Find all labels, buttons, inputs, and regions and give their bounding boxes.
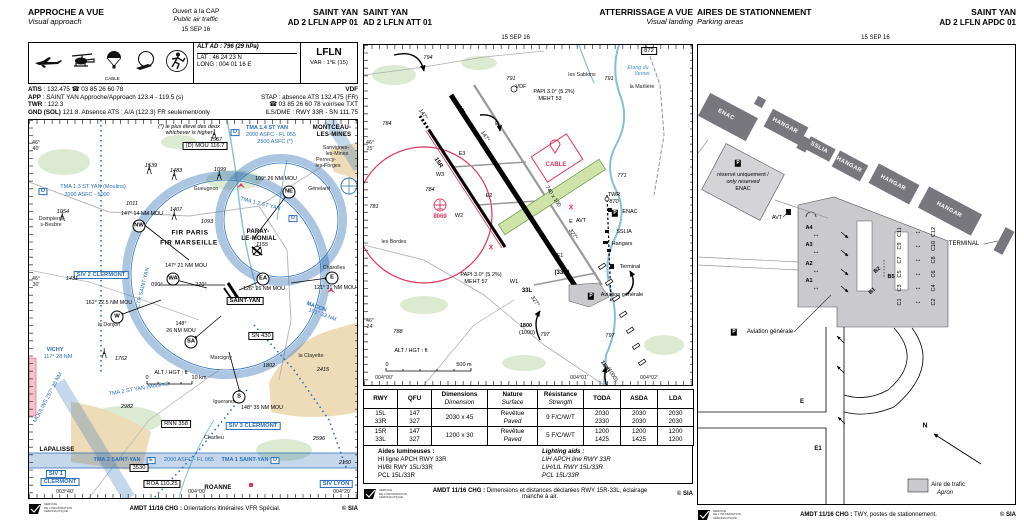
map-label: C12 <box>932 227 938 237</box>
approach-infobox: CABLE ALT AD : 796 (29 hPa) LAT : 46 24 … <box>28 42 358 84</box>
map-label: 797 <box>540 333 549 339</box>
chart-date: 15 SEP 16 <box>501 32 530 42</box>
map-label: Marcigny <box>210 356 232 362</box>
map-label: 25' <box>367 147 374 153</box>
parking-title-en: Parking areas <box>697 18 811 27</box>
map-label: Hangars <box>612 242 633 248</box>
approach-header: APPROCHE A VUE Visual approach Ouvert à … <box>28 8 358 42</box>
map-label: ↔ <box>915 270 922 277</box>
map-label: 797 <box>605 334 614 340</box>
landing-ident: SAINT YAN AD 2 LFLN ATT 01 <box>363 8 432 27</box>
map-label: 004°01' <box>570 376 588 382</box>
map-label: 1800 <box>520 324 532 330</box>
map-label: 004°00' <box>188 490 206 496</box>
map-label: A3 <box>805 243 812 249</box>
map-label: ↔ <box>813 231 820 238</box>
map-label: 0 <box>145 376 148 382</box>
map-label: 1093 <box>201 220 213 226</box>
map-label: ENAC <box>622 210 637 216</box>
frequencies: ATIS : 132.475 ☎ 03 85 26 60 78VDF APP :… <box>28 86 358 117</box>
map-label: D <box>231 129 240 137</box>
map-label: 1762 <box>115 357 127 363</box>
map-label: 2982 <box>121 405 133 411</box>
map-label: 2596 <box>313 437 325 443</box>
table-row: 15L33R 147327 2030 x 45 RevêtuePaved 9 F… <box>364 408 694 427</box>
map-label: 126° 26 NM MOU <box>243 287 285 293</box>
map-label: C9 <box>898 242 904 249</box>
map-label: SAINT-YAN <box>227 297 264 305</box>
landing-panel: SAINT YAN AD 2 LFLN ATT 01 15 SEP 16 ATT… <box>363 0 693 526</box>
map-label: la Marlière <box>630 85 655 91</box>
map-label: SIV 2 CLERMONT <box>74 271 129 279</box>
map-label: 109° 26 NM MOU <box>255 177 297 183</box>
map-label: ROA 110.25 <box>143 480 180 488</box>
map-label: C10 <box>932 241 938 251</box>
map-label: ↔ <box>813 248 820 255</box>
map-label: PAPI 3.0° (5.2%) <box>533 90 574 96</box>
map-label: E1 <box>557 254 564 260</box>
map-label: Terminal <box>620 265 641 271</box>
map-label: 147° 14 NM MOU <box>121 212 163 218</box>
parking-map: ENACHANGARSSLIAHANGARHANGARHANGARTERMINA… <box>697 44 1016 505</box>
map-label: C2 <box>932 298 938 305</box>
map-label: 270° <box>195 283 206 289</box>
vac-chart-page: APPROCHE A VUE Visual approach Ouvert à … <box>0 0 1024 526</box>
lighting-fr: Aides lumineuses : HI ligne APCH RWY 33R… <box>364 448 528 480</box>
map-label: VICHY <box>47 348 64 354</box>
lat: LAT : 46 24 23 N <box>197 55 297 63</box>
map-label: 1407 <box>170 208 182 214</box>
chart-ref: AD 2 LFLN ATT 01 <box>363 18 432 27</box>
cap-en: Public air traffic <box>172 16 219 24</box>
copyright: © SIA <box>976 512 1016 518</box>
map-label: TERMINAL <box>949 241 979 247</box>
approach-title-en: Visual approach <box>28 18 104 27</box>
sia-logo: SERVICEDE L'INFORMATIONAÉRONAUTIQUE <box>363 488 427 500</box>
map-label: Charlieu <box>204 436 224 442</box>
map-label: (1000) <box>519 331 535 337</box>
map-label: MEHT 57 <box>464 280 487 286</box>
map-label: 33L <box>522 288 532 294</box>
landing-map: 872Etang duVernetla Marlièreles Sablons7… <box>363 44 693 386</box>
map-label: 788 <box>393 330 402 336</box>
map-label: 121° 31 NM MOU <box>314 286 356 292</box>
map-label: SIV LYON <box>320 480 353 488</box>
map-label: whichever is higher <box>165 131 212 137</box>
map-label: AVT <box>772 216 782 222</box>
map-label: MONTCEAU- <box>313 125 351 131</box>
map-label: 24' <box>367 325 374 331</box>
map-label: 148° <box>176 322 187 328</box>
map-label: D <box>289 215 298 223</box>
map-label: NW <box>133 219 146 232</box>
map-label: 870 <box>609 200 618 206</box>
map-label: (33R) <box>554 270 569 276</box>
map-label: ↔ <box>915 298 922 305</box>
airport-name: SAINT YAN <box>363 8 432 18</box>
map-label: TMA 1.4 ST YAN <box>246 126 288 132</box>
aerobatics-icon <box>132 50 158 77</box>
map-label: A4 <box>805 226 812 232</box>
copyright: © SIA <box>318 506 358 512</box>
activity-icons: CABLE <box>29 43 193 83</box>
map-label: ↔ <box>813 267 820 274</box>
map-label: TMA 1.3 ST YAN (Moulins) <box>60 185 125 191</box>
map-label: E <box>569 220 573 226</box>
map-label: E <box>800 399 804 405</box>
copyright: © SIA <box>653 491 693 497</box>
cable-label: CABLE <box>105 76 120 81</box>
aerobatic-symbol <box>434 199 446 211</box>
map-label: SSLIA <box>616 230 632 236</box>
map-label: LES-MINES <box>317 132 351 138</box>
runway-table: RWY QFU DimensionsDimension NatureSurfac… <box>363 389 694 446</box>
lighting-aids: Aides lumineuses : HI ligne APCH RWY 33R… <box>363 446 693 484</box>
long: LONG : 004 01 16 E <box>197 62 297 70</box>
map-label: E2 <box>486 194 493 200</box>
map-label: A1 <box>805 279 812 285</box>
map-label: NE <box>283 185 296 198</box>
map-label: E <box>326 271 339 284</box>
map-label: P <box>588 293 594 300</box>
airplane-icon <box>33 52 63 75</box>
apron-island <box>857 221 872 291</box>
chart-date: 15 SEP 16 <box>861 32 890 42</box>
lighting-en: Lighting aids : LIH APCH line RWY 33R LI… <box>528 448 692 480</box>
map-label: 1099 <box>214 168 226 174</box>
altitude-cell: ALT AD : 796 (29 hPa) LAT : 46 24 23 N L… <box>193 43 300 83</box>
map-label: ↔ <box>813 284 820 291</box>
map-label: D <box>271 457 280 465</box>
map-label: 10 km <box>192 376 207 382</box>
map-label: PAPI 3.0° (5.2%) <box>460 273 501 279</box>
map-label: Aviation générale <box>601 293 643 299</box>
map-label: 8069 <box>433 214 446 220</box>
map-label: les-Forges <box>315 164 340 170</box>
map-label: 26 NM MOU <box>166 329 195 335</box>
map-label: ↔ <box>915 228 922 235</box>
chart-ref: AD 2 LFLN APDC 01 <box>939 18 1016 27</box>
map-label: 117° 28 NM <box>44 355 73 361</box>
map-label: C4 <box>932 284 938 291</box>
map-label: les Sablons <box>568 73 595 79</box>
map-label: Aire de trafic <box>931 482 965 488</box>
map-label: WA <box>167 272 180 285</box>
map-label: N <box>922 422 927 429</box>
map-label: 30' <box>33 283 40 289</box>
map-label: E3 <box>459 152 466 158</box>
map-label: 794 <box>423 56 432 62</box>
map-label: ↔ <box>915 256 922 263</box>
map-label: 004°20' <box>333 490 351 496</box>
chart-date: 15 SEP 16 <box>172 27 219 34</box>
map-label: Vernet <box>634 72 649 78</box>
map-label: EA <box>257 272 270 285</box>
map-label: ↔ <box>915 242 922 249</box>
sia-logo: SERVICEDE L'INFORMATIONAÉRONAUTIQUE <box>28 503 92 515</box>
map-label: 147° 21 NM MOU <box>165 264 207 270</box>
map-label: W3 <box>436 173 444 179</box>
landing-title: ATTERRISSAGE A VUE Visual landing <box>599 8 693 26</box>
map-label: TWR <box>608 193 621 199</box>
map-label: 2000 ASFC - FL 065 <box>164 458 214 464</box>
amendment-note: AMDT 11/16 CHG : Orientations itinéraire… <box>92 506 318 512</box>
map-label: 2000 ASFC - FL 055 <box>246 133 296 139</box>
map-label: FIR MARSEILLE <box>160 240 218 247</box>
map-label: 1431 <box>66 277 78 283</box>
freq-row: APP : SAINT YAN Approche/Approach 123.4 … <box>28 94 358 102</box>
map-label: 2000 ASFC - 5000 <box>64 193 109 199</box>
map-label: 872 <box>641 47 657 55</box>
parking-footer: SERVICEDE L'INFORMATIONAÉRONAUTIQUE AMDT… <box>697 509 1016 521</box>
chart-ref: AD 2 LFLN APP 01 <box>288 18 358 27</box>
map-label: ENAC <box>735 187 750 193</box>
map-label: D <box>39 188 48 196</box>
map-label: 1011 <box>126 202 138 208</box>
landing-header: SAINT YAN AD 2 LFLN ATT 01 15 SEP 16 ATT… <box>363 8 693 42</box>
map-label: C6 <box>932 270 938 277</box>
map-label: ALT / HGT : ft <box>154 371 187 377</box>
cap-fr: Ouvert à la CAP <box>172 8 219 16</box>
map-label: 148° 35 NM MOU <box>241 406 283 412</box>
map-label: Gueugnon <box>194 187 219 193</box>
map-label: 40' <box>33 147 40 153</box>
legend-apron-swatch <box>908 479 928 492</box>
map-label: 004°00' <box>375 376 393 382</box>
sia-logo: SERVICEDE L'INFORMATIONAÉRONAUTIQUE <box>697 509 761 521</box>
approach-cap: Ouvert à la CAP Public air traffic 15 SE… <box>172 8 219 34</box>
map-label: Aviation générale <box>747 329 793 335</box>
map-label: 784 <box>382 122 391 128</box>
approach-footer: SERVICEDE L'INFORMATIONAÉRONAUTIQUE AMDT… <box>28 503 358 515</box>
map-label: ROANNE <box>204 485 231 491</box>
table-header-row: RWY QFU DimensionsDimension NatureSurfac… <box>364 390 694 409</box>
map-label: 2415 <box>317 368 329 374</box>
airport-name: SAINT YAN <box>288 8 358 18</box>
freq-row: ATIS : 132.475 ☎ 03 85 26 60 78VDF <box>28 86 358 94</box>
map-label: AVT <box>576 219 586 225</box>
roanne-symbol <box>249 483 253 487</box>
map-label: le Donjon <box>98 323 120 329</box>
approach-panel: APPROCHE A VUE Visual approach Ouvert à … <box>28 0 358 526</box>
parking-header: AIRES DE STATIONNEMENT Parking areas 15 … <box>697 8 1016 42</box>
map-label: 784 <box>425 188 434 194</box>
map-label: 1802 <box>263 364 275 370</box>
avt-symbol <box>786 209 791 215</box>
amendment-note: AMDT 11/16 CHG : Dimensions et distances… <box>427 488 653 500</box>
map-label: 791 <box>506 77 515 83</box>
vor-rose <box>341 178 357 194</box>
map-label: 004°02' <box>640 376 658 382</box>
map-label: ↔ <box>915 284 922 291</box>
map-label: W1 <box>510 280 518 286</box>
map-label: LAPALISSE <box>39 447 74 453</box>
map-label: 1483 <box>170 169 182 175</box>
map-label: B5 <box>887 275 894 281</box>
map-label: 0 <box>385 363 388 369</box>
map-label: la Clayette <box>298 354 323 360</box>
icao-cell: LFLN VAR : 1°E (15) <box>300 43 357 83</box>
map-label: P <box>731 329 737 336</box>
map-label: C3 <box>898 284 904 291</box>
landing-footer: SERVICEDE L'INFORMATIONAÉRONAUTIQUE AMDT… <box>363 488 693 500</box>
map-label: S <box>233 390 246 403</box>
amendment-note: AMDT 11/16 CHG : TWY, postes de stationn… <box>761 512 976 518</box>
map-label: C5 <box>898 270 904 277</box>
map-label: 2150 <box>339 461 351 467</box>
map-label: 771 <box>617 174 626 180</box>
map-label: E <box>495 122 499 128</box>
map-label: FIR PARIS <box>171 230 208 237</box>
parking-ident: SAINT YAN AD 2 LFLN APDC 01 <box>939 8 1016 27</box>
map-label: 1054 <box>57 210 69 216</box>
map-label: C8 <box>932 256 938 263</box>
icao-code: LFLN <box>301 47 357 58</box>
map-label: 2500 ASFC (*) <box>257 140 292 146</box>
map-label: VDF <box>516 85 527 91</box>
map-label: Génelard <box>308 187 330 193</box>
map-label: C1 <box>898 298 904 305</box>
map-label: 090° <box>151 283 162 289</box>
map-label: P <box>735 160 741 167</box>
helicopter-icon <box>70 52 96 75</box>
approach-ident: SAINT YAN AD 2 LFLN APP 01 <box>288 8 358 27</box>
map-label: TMA 1 SAINT-YAN <box>222 458 269 464</box>
map-label: PARAY- <box>247 229 270 235</box>
map-label: 3530 <box>130 464 149 472</box>
map-label: W2 <box>455 214 463 220</box>
map-label: les Bordes <box>381 240 406 246</box>
magnetic-var: VAR : 1°E (15) <box>301 60 357 66</box>
map-label: ALT / HGT : ft <box>394 349 427 355</box>
cross-country-icon <box>165 49 189 78</box>
parking-title: AIRES DE STATIONNEMENT Parking areas <box>697 8 811 26</box>
map-label: MEHT 53 <box>538 97 561 103</box>
freq-row: TWR : 122.3☎ 03 85 26 60 78 voir/see TXT <box>28 101 358 109</box>
map-label: SA <box>185 335 198 348</box>
parking-panel: AIRES DE STATIONNEMENT Parking areas 15 … <box>697 0 1016 526</box>
alt-ad: ALT AD : 796 (29 hPa) <box>197 44 297 54</box>
map-label: réservé uniquement / <box>717 173 769 179</box>
map-label: CABLE <box>546 162 567 168</box>
map-label: 791 <box>604 77 613 83</box>
map-label: 1155 <box>256 243 268 249</box>
map-label: P <box>612 210 618 217</box>
approach-map: (D) MOU 116.7DTMA 1.4 ST YAN2000 ASFC - … <box>28 119 358 499</box>
map-label: SIV 1 <box>46 470 66 478</box>
map-label: 162° 22.5 NM MOU <box>86 301 132 307</box>
map-label: only reserved <box>726 180 759 186</box>
map-label: SIV 3 CLERMONT <box>226 422 281 430</box>
map-label: 500 m <box>456 363 471 369</box>
map-label: A2 <box>805 262 812 268</box>
airport-name: SAINT YAN <box>939 8 1016 18</box>
parachute-cable-icon: CABLE <box>104 50 124 77</box>
table-row: 15R33L 147327 1200 x 30 RevêtuePaved 5 F… <box>364 427 694 446</box>
map-label: C7 <box>898 256 904 263</box>
map-label: SN 430 <box>248 332 273 340</box>
map-label: s-Besbre <box>40 223 61 229</box>
map-label: 781 <box>369 205 378 211</box>
map-label: CLERMONT <box>41 478 80 486</box>
freq-row: GND (SOL) 121.8. Absence ATS : A/A (122.… <box>28 109 358 117</box>
restricted-strip <box>29 358 36 416</box>
map-label: Apron <box>937 490 953 496</box>
map-label: C11 <box>898 227 904 237</box>
landing-title-en: Visual landing <box>599 18 693 27</box>
map-label: E1 <box>814 446 821 452</box>
map-label: 1539 <box>145 164 157 170</box>
map-label: RNN 358 <box>161 420 191 428</box>
map-label: 003°40' <box>56 490 74 496</box>
approach-title: APPROCHE A VUE Visual approach <box>28 8 104 26</box>
parking-map-graphics <box>698 45 1016 504</box>
map-label: 1567 <box>210 138 222 144</box>
